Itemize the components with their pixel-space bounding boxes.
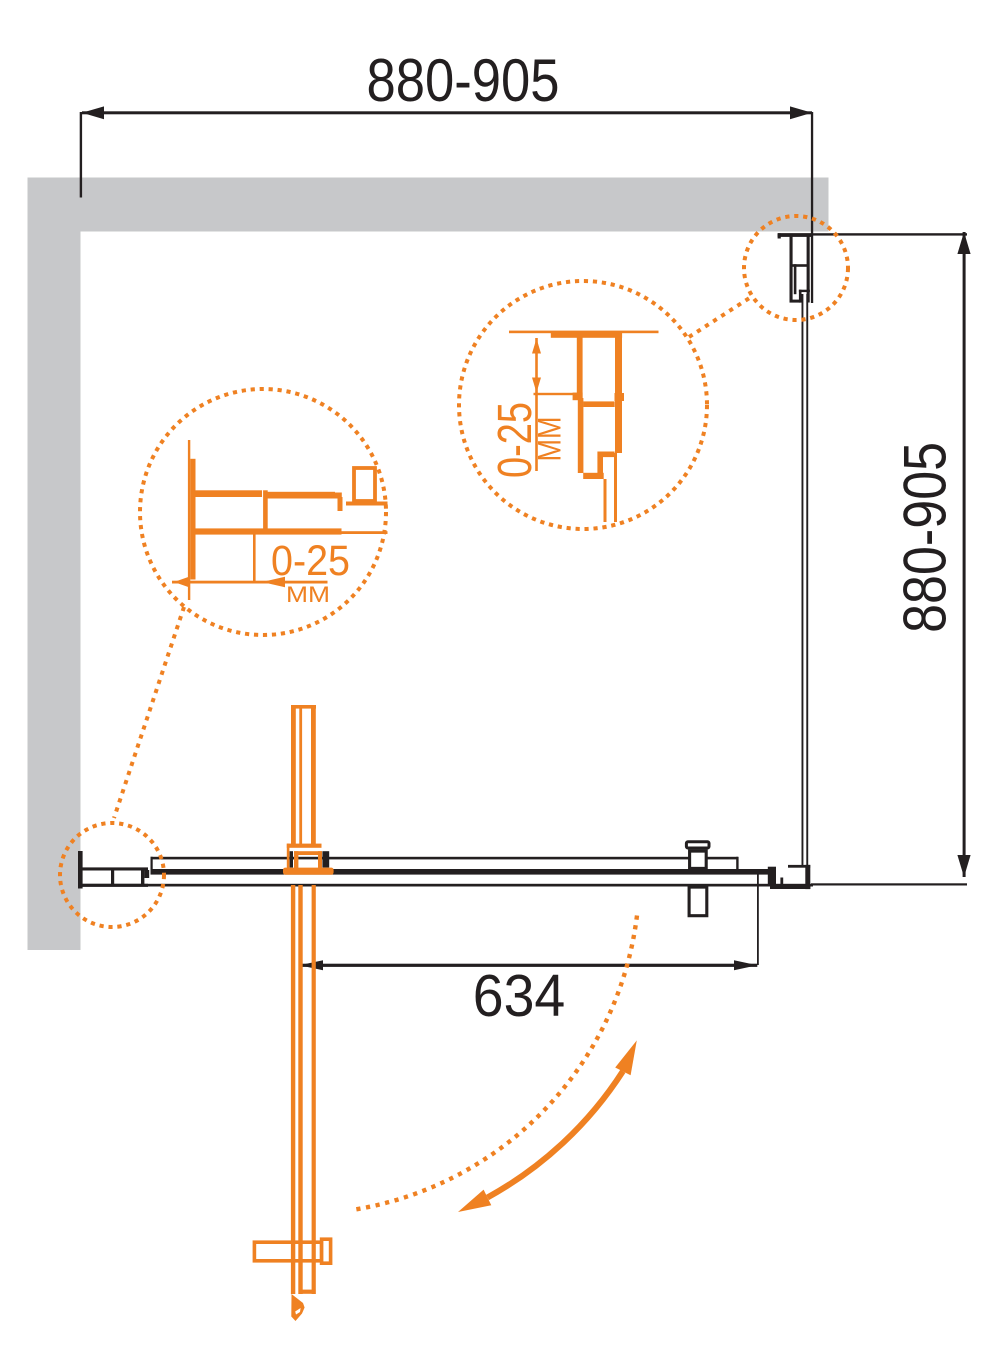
svg-text:634: 634 <box>473 963 566 1029</box>
svg-text:0-25: 0-25 <box>271 537 350 585</box>
svg-text:MM: MM <box>286 582 330 607</box>
svg-text:880-905: 880-905 <box>367 46 560 114</box>
svg-text:880-905: 880-905 <box>891 442 959 633</box>
svg-text:MM: MM <box>531 417 567 462</box>
